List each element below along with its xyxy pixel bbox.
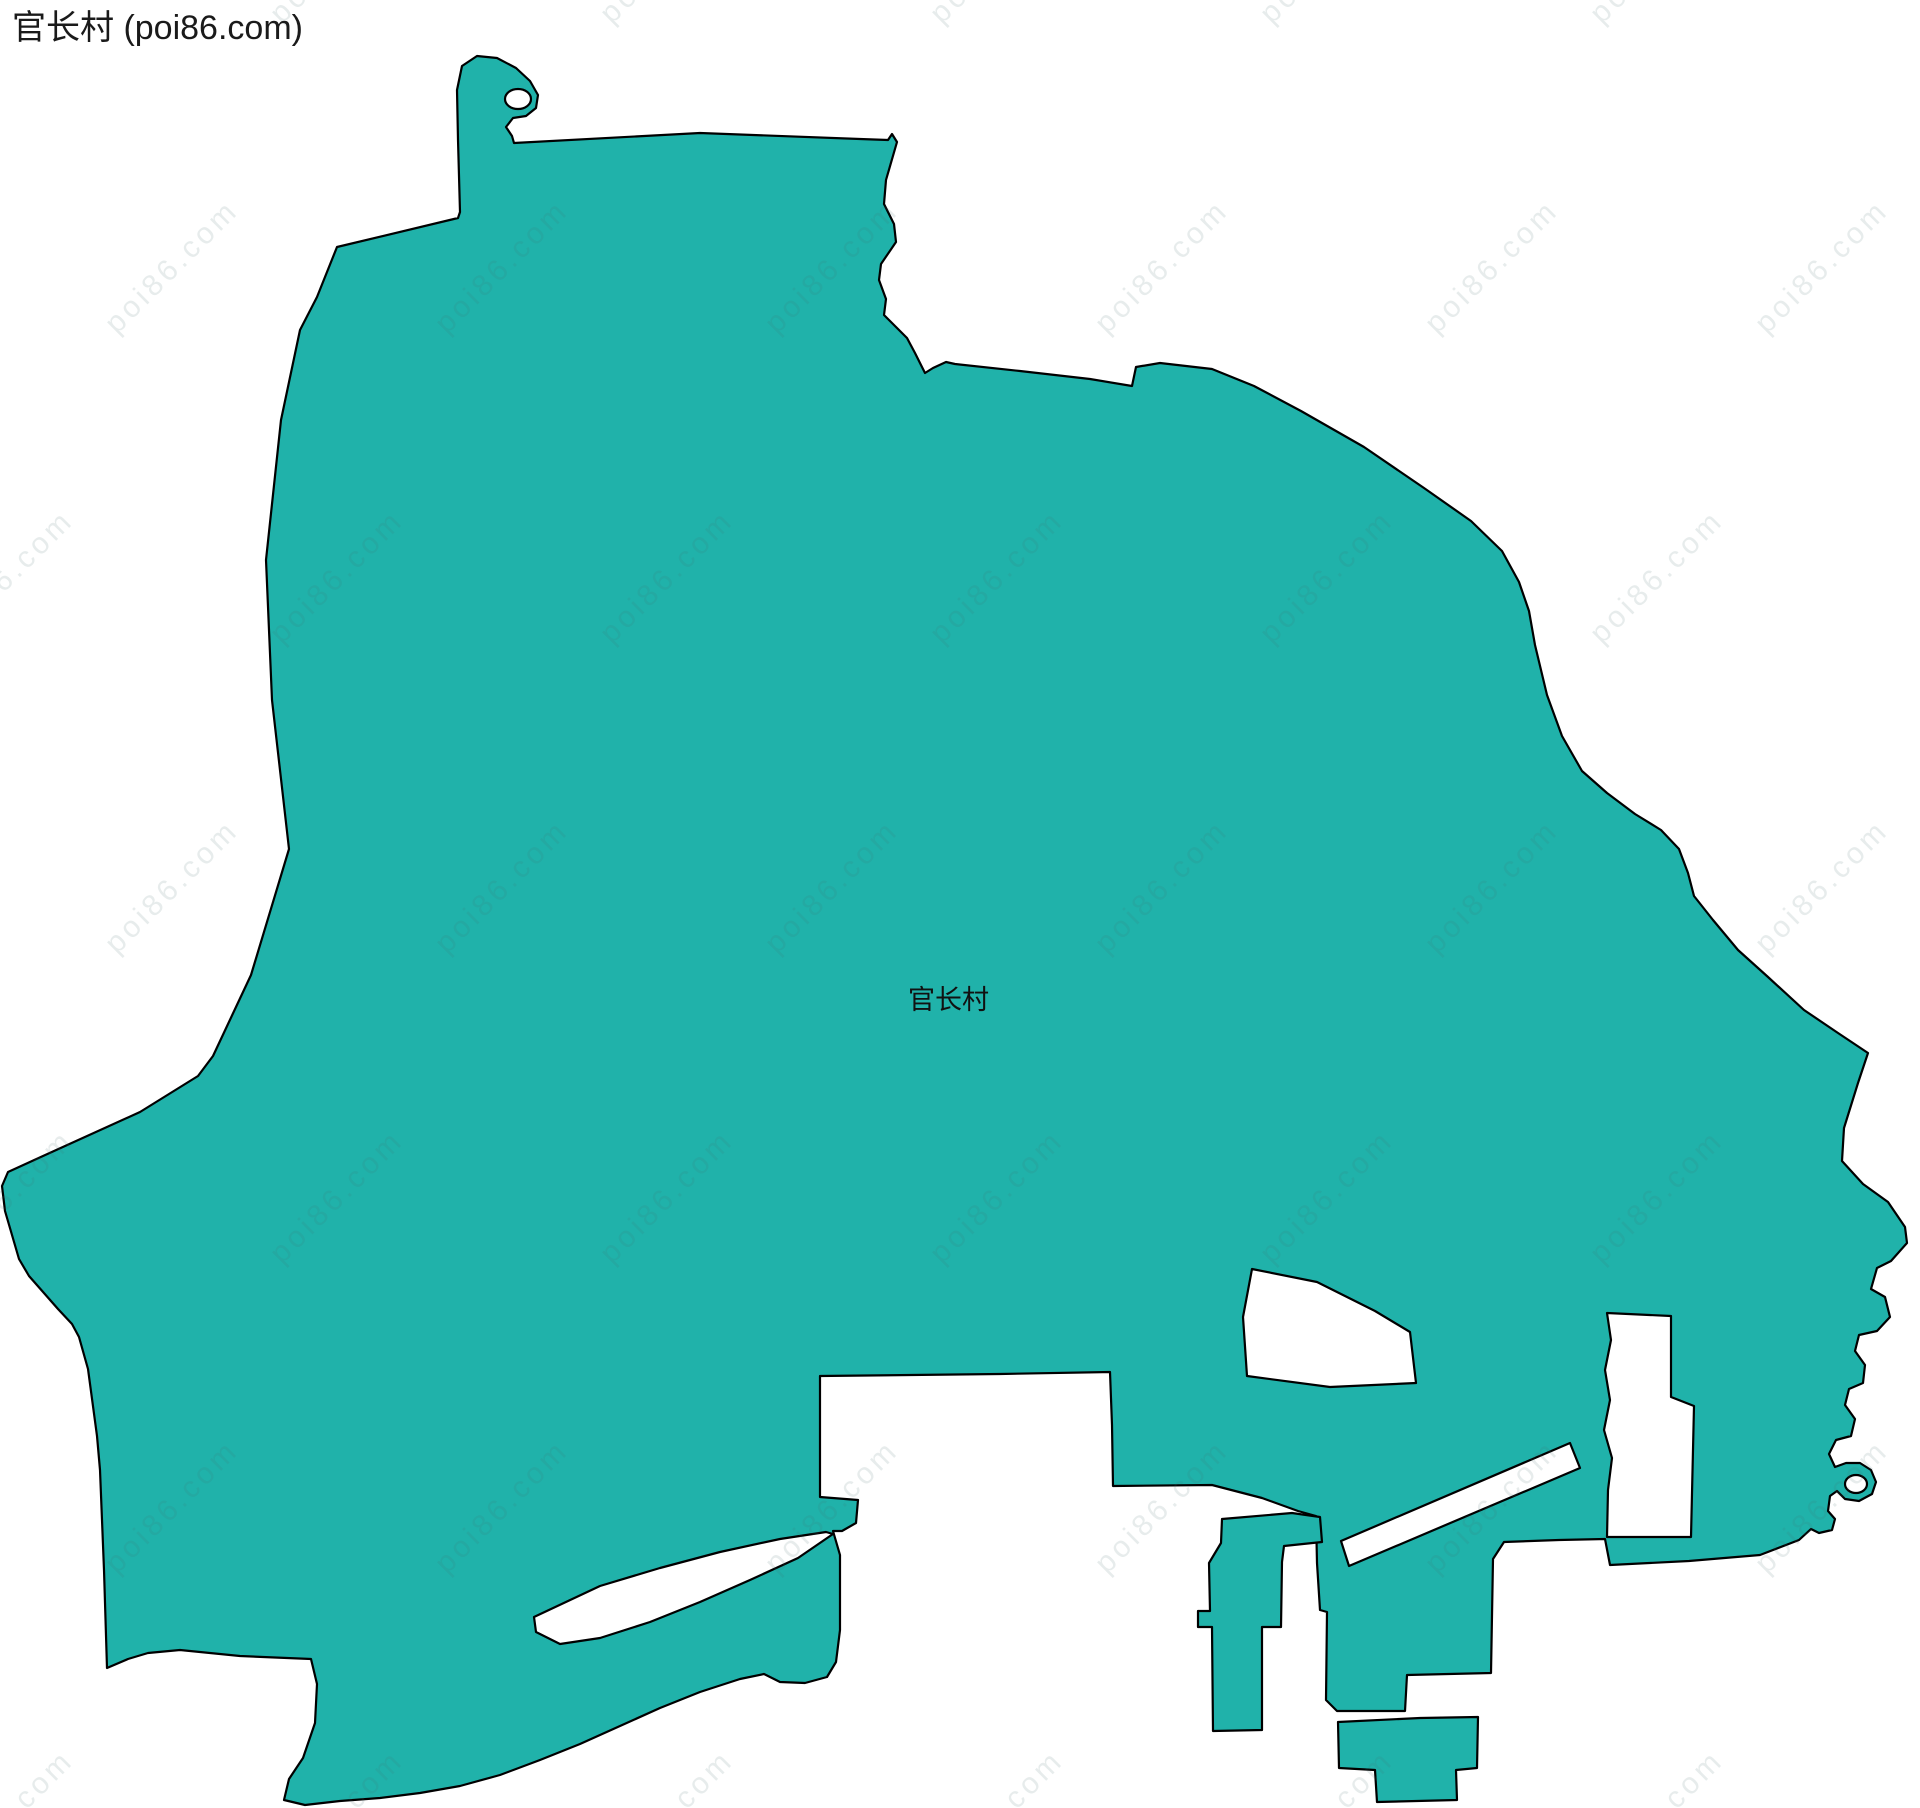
village-label: 官长村 [908,978,989,1017]
hole-hook-notch [505,89,531,109]
map-stage: poi86.compoi86.compoi86.compoi86.compoi8… [0,0,1920,1808]
hole-southeast-curl-notch [1845,1475,1867,1493]
page-title: 官长村 (poi86.com) [12,8,303,49]
map-canvas [0,0,1920,1808]
